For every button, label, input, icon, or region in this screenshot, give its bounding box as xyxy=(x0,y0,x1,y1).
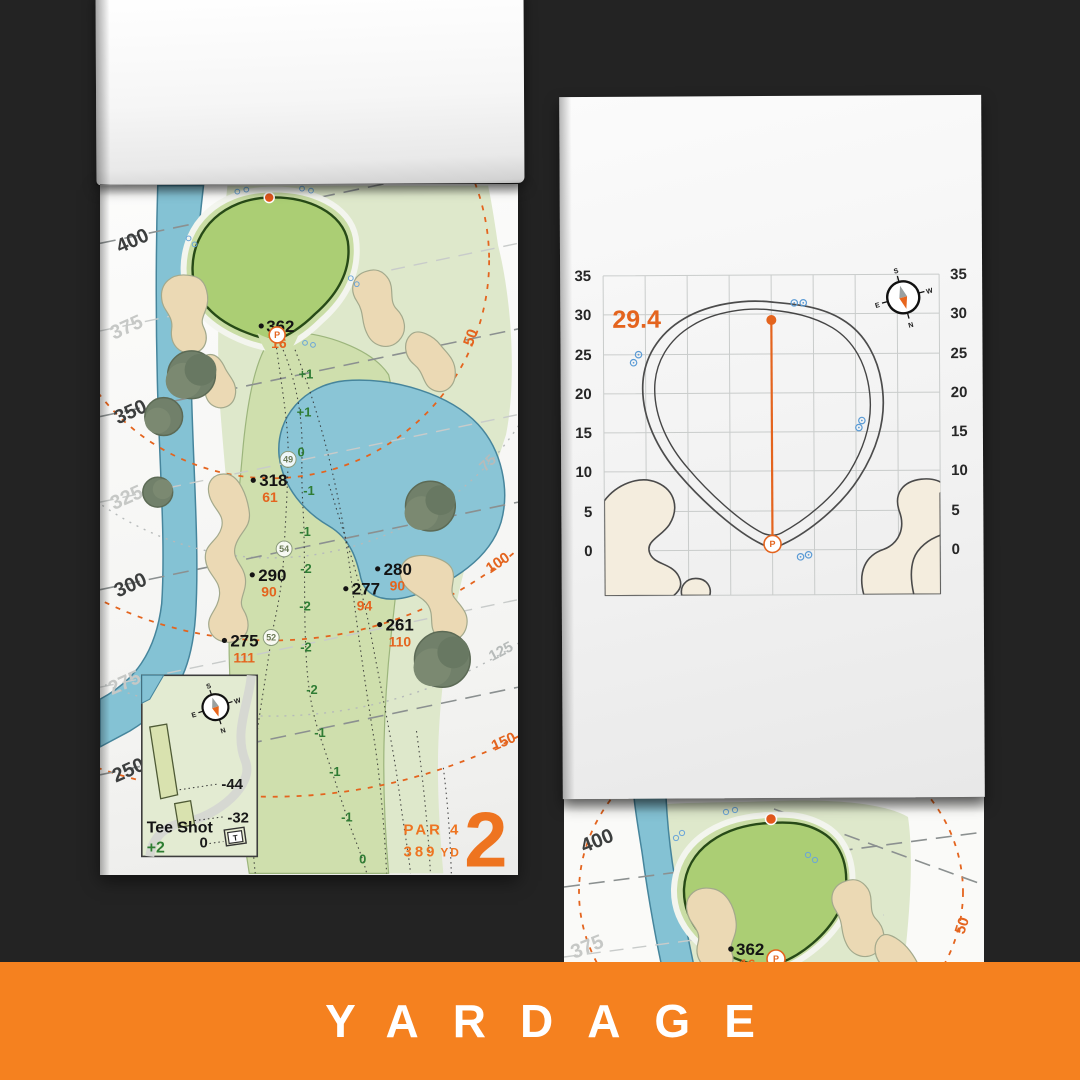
left-yardage-book: 400 375 350 325 300 275 250 50 75 100 12… xyxy=(94,0,524,880)
tee-shot-inset: S N W E -44 -32 0 T xyxy=(142,675,257,856)
axis-tick: 0 xyxy=(584,543,592,560)
yardage-value: 389 xyxy=(404,843,438,860)
pin-icon xyxy=(766,814,777,825)
green-detail-page: P 29.4 S N W E xyxy=(559,95,985,799)
axis-tick: 15 xyxy=(951,423,968,440)
tee-marker-icon: T xyxy=(224,827,246,846)
next-map-page: P 400 375 50 362 16 xyxy=(564,797,984,980)
marker-distance: 275 xyxy=(230,631,258,650)
elevation-label: -2 xyxy=(306,682,318,697)
flipped-blank-page xyxy=(96,0,525,185)
right-yardage-book: P 400 375 50 362 16 xyxy=(561,96,985,980)
elevation-label: -2 xyxy=(300,561,312,576)
yardage-banner: YARDAGE xyxy=(0,962,1080,1080)
tee-offset-label: 0 xyxy=(200,834,208,851)
axis-tick: 10 xyxy=(951,462,968,479)
marker-front: 110 xyxy=(389,633,412,649)
waypoint-label: 52 xyxy=(266,632,276,642)
next-map-svg: P 400 375 50 362 16 xyxy=(564,797,984,980)
marker-front: 90 xyxy=(390,578,406,594)
arc-label: 125 xyxy=(486,638,516,665)
marker-distance: 277 xyxy=(352,580,380,599)
distance-label: 375 xyxy=(107,311,146,345)
elevation-label: 0 xyxy=(359,851,366,866)
elevation-label: -2 xyxy=(299,599,311,614)
green-center-icon: P xyxy=(269,327,285,343)
marker-front: 90 xyxy=(261,584,277,600)
axis-tick: 20 xyxy=(575,386,592,403)
tee-offset-label: -32 xyxy=(227,810,249,827)
distance-label: 350 xyxy=(111,395,150,429)
green-center-label: P xyxy=(769,539,775,549)
arc-label: 50 xyxy=(952,915,973,936)
elevation-label: -1 xyxy=(314,725,326,740)
elevation-label: +1 xyxy=(299,367,314,382)
banner-title: YARDAGE xyxy=(291,994,789,1048)
marker-distance: 261 xyxy=(386,616,414,635)
yardage-unit: YD xyxy=(440,845,461,859)
elevation-label: -1 xyxy=(303,483,315,498)
axis-tick: 10 xyxy=(575,464,592,481)
inset-title: Tee Shot xyxy=(147,820,214,837)
arc-label: 150 xyxy=(489,729,518,755)
arc-label: 100 xyxy=(483,549,513,577)
distance-label: 325 xyxy=(107,481,146,515)
pin-depth-value: 29.4 xyxy=(612,306,661,334)
green-center-label: P xyxy=(274,330,280,340)
marker-distance: 290 xyxy=(258,566,286,585)
waypoint-label: 54 xyxy=(279,544,289,554)
axis-ticks-left: 35 30 25 20 15 10 5 0 xyxy=(574,268,592,560)
compass-n: N xyxy=(908,322,915,330)
axis-tick: 20 xyxy=(951,384,968,401)
elevation-label: 0 xyxy=(297,444,304,459)
elevation-label: -1 xyxy=(299,524,311,539)
compass-w: W xyxy=(926,287,935,296)
marker-distance: 318 xyxy=(259,471,287,490)
axis-tick: 35 xyxy=(950,266,967,283)
marker-front: 111 xyxy=(233,649,255,665)
axis-tick: 5 xyxy=(584,504,592,521)
axis-ticks-right: 35 30 25 20 15 10 5 0 xyxy=(950,266,968,558)
axis-tick: 15 xyxy=(575,425,592,442)
axis-tick: 35 xyxy=(574,268,591,285)
axis-tick: 0 xyxy=(951,541,959,558)
elevation-label: -1 xyxy=(329,764,341,779)
par-label: PAR 4 xyxy=(404,822,462,839)
hole-map-page: 400 375 350 325 300 275 250 50 75 100 12… xyxy=(100,184,518,875)
axis-tick: 25 xyxy=(575,347,592,364)
distance-label: 400 xyxy=(578,825,617,858)
compass-icon: S N W E xyxy=(867,260,942,337)
axis-tick: 25 xyxy=(950,345,967,362)
marker-front: 61 xyxy=(262,489,278,505)
compass-e: E xyxy=(874,302,881,310)
waypoint-label: 49 xyxy=(283,454,293,464)
distance-label: 300 xyxy=(111,569,150,603)
inset-elevation: +2 xyxy=(147,839,165,856)
pin-icon xyxy=(766,315,776,325)
pin-icon xyxy=(264,193,274,203)
green-detail-svg: P 29.4 S N W E xyxy=(559,95,985,799)
tee-offset-label: -44 xyxy=(221,776,243,793)
hole-map-svg: 400 375 350 325 300 275 250 50 75 100 12… xyxy=(100,184,518,875)
marker-distance: 280 xyxy=(384,560,412,579)
distance-label: 400 xyxy=(113,224,152,258)
axis-tick: 30 xyxy=(575,307,592,324)
elevation-label: -1 xyxy=(341,810,353,825)
axis-tick: 30 xyxy=(950,305,967,322)
marker-front: 94 xyxy=(357,598,373,614)
axis-tick: 5 xyxy=(951,502,959,519)
yardage-book-product-shot: 400 375 350 325 300 275 250 50 75 100 12… xyxy=(0,0,1080,1080)
hole-number: 2 xyxy=(464,797,507,875)
compass-s: S xyxy=(893,268,900,276)
elevation-label: +1 xyxy=(297,405,312,420)
elevation-label: -2 xyxy=(300,639,312,654)
distance-label: 375 xyxy=(568,931,607,964)
pin-depth-line: P xyxy=(763,315,781,553)
